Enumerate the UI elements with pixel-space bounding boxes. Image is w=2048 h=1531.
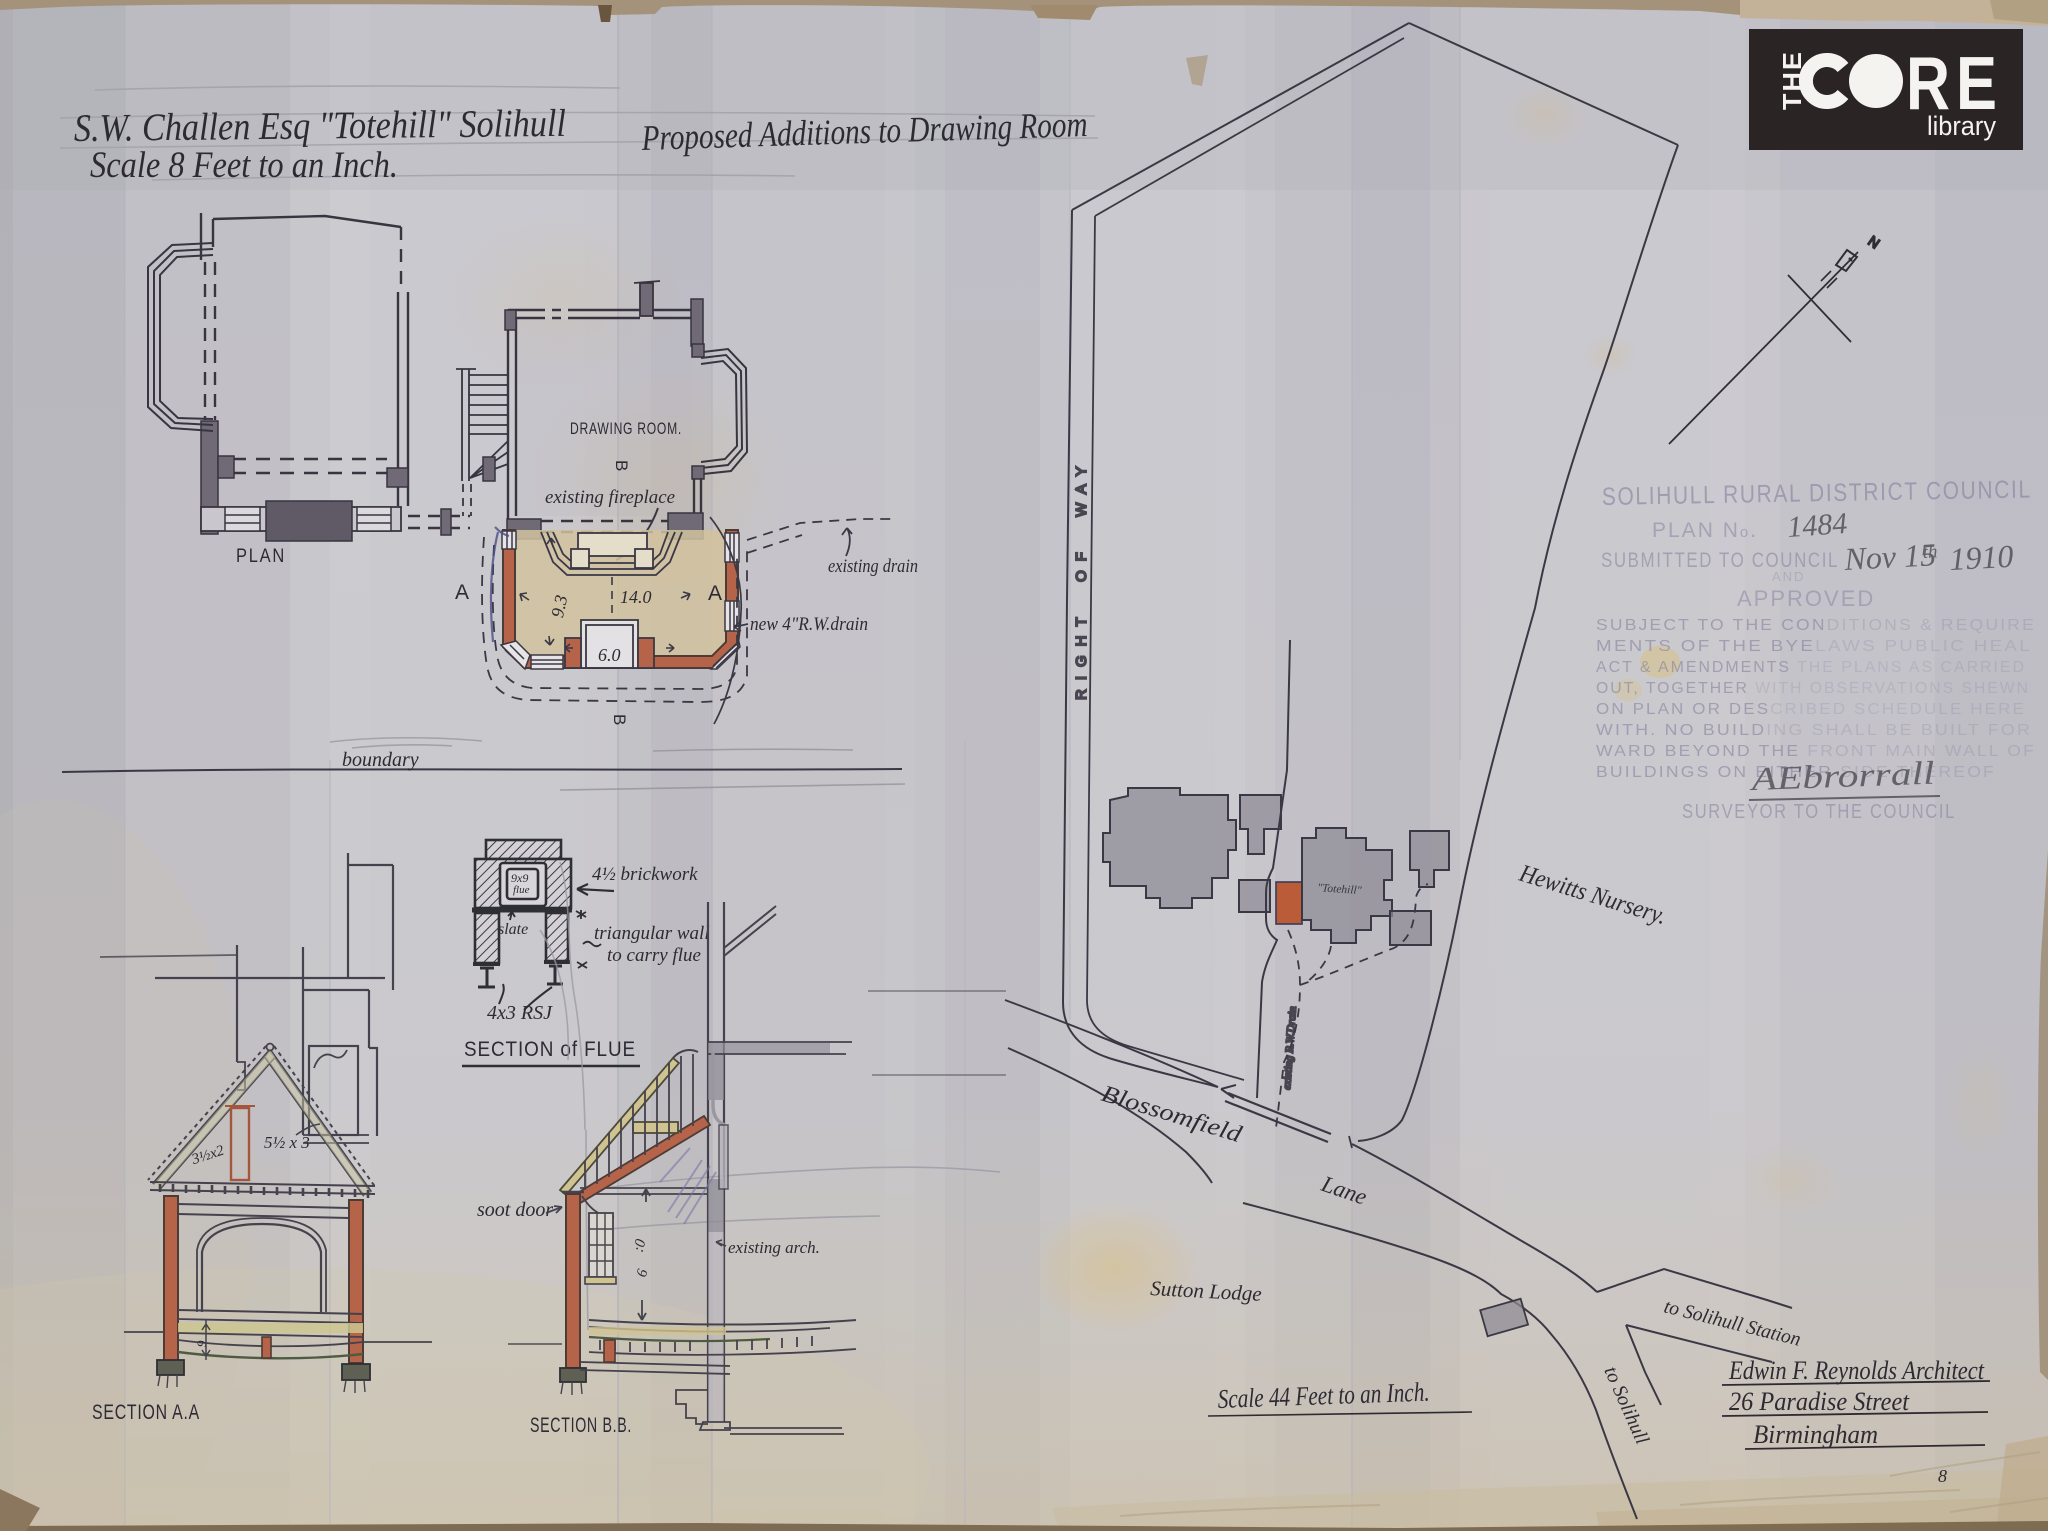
svg-text:14.0: 14.0 (620, 587, 652, 607)
svg-text:WITH. NO BUILDING SHALL BE BUI: WITH. NO BUILDING SHALL BE BUILT FOR (1596, 722, 2032, 739)
svg-text:S.W. Challen Esq "Totehill" So: S.W. Challen Esq "Totehill" Solihull (74, 102, 566, 150)
svg-text:6.0: 6.0 (598, 645, 621, 665)
svg-text:new 4"R.W.drain: new 4"R.W.drain (750, 614, 868, 635)
svg-text:DRAWING ROOM.: DRAWING ROOM. (570, 419, 682, 438)
svg-text:A: A (455, 581, 469, 604)
svg-text:SUBJECT TO THE CONDITIONS & RE: SUBJECT TO THE CONDITIONS & REQUIRE (1596, 617, 2036, 634)
svg-text:4½ brickwork: 4½ brickwork (592, 864, 698, 885)
svg-text:ON PLAN OR DESCRIBED SCHEDULE: ON PLAN OR DESCRIBED SCHEDULE HERE (1596, 701, 2026, 718)
svg-text:flue: flue (513, 884, 530, 896)
svg-text:to carry flue: to carry flue (607, 945, 701, 966)
svg-text:existing arch.: existing arch. (728, 1238, 820, 1257)
svg-text:9: 9 (194, 1340, 209, 1347)
svg-text:MENTS OF THE BYELAWS PUBLIC HE: MENTS OF THE BYELAWS PUBLIC HEAL (1596, 638, 2032, 655)
svg-text:library: library (1927, 111, 1996, 141)
svg-text:Birmingham: Birmingham (1753, 1420, 1878, 1449)
svg-text:Scale 8 Feet to an Inch.: Scale 8 Feet to an Inch. (90, 145, 398, 186)
svg-text:ACT & AMENDMENTS THE PLANS AS: ACT & AMENDMENTS THE PLANS AS CARRIED (1596, 659, 2026, 676)
svg-text:APPROVED: APPROVED (1737, 586, 1875, 611)
svg-text:SURVEYOR TO THE COUNCIL: SURVEYOR TO THE COUNCIL (1682, 801, 1956, 823)
svg-text:B: B (612, 460, 631, 471)
svg-text:AEbrorrall: AEbrorrall (1749, 756, 1936, 798)
svg-text:boundary: boundary (342, 749, 419, 771)
svg-text:th: th (1922, 541, 1938, 563)
svg-text:AND: AND (1772, 569, 1805, 584)
svg-text:WARD BEYOND THE FRONT MAIN WAL: WARD BEYOND THE FRONT MAIN WALL OF (1596, 743, 2036, 760)
svg-text:9x9: 9x9 (511, 871, 528, 885)
svg-text:8: 8 (1938, 1466, 1947, 1486)
svg-text:1910: 1910 (1948, 538, 2014, 577)
svg-text:B: B (610, 714, 629, 725)
svg-text:SECTION B.B.: SECTION B.B. (530, 1414, 632, 1437)
svg-text:triangular wall: triangular wall (594, 923, 710, 944)
svg-text:1484: 1484 (1786, 507, 1848, 544)
svg-text:Edwin F. Reynolds Architect: Edwin F. Reynolds Architect (1728, 1356, 1985, 1385)
svg-text:SECTION of FLUE: SECTION of FLUE (464, 1038, 636, 1061)
svg-text:A: A (708, 582, 722, 605)
svg-text:existing drain: existing drain (828, 556, 918, 577)
svg-text:slate: slate (498, 921, 528, 938)
svg-text:SECTION A.A: SECTION A.A (92, 1401, 200, 1424)
svg-text:26 Paradise Street: 26 Paradise Street (1729, 1387, 1910, 1416)
svg-text:soot door: soot door (477, 1199, 553, 1221)
svg-text:OUT, TOGETHER WITH OBSERVATION: OUT, TOGETHER WITH OBSERVATIONS SHEWN (1596, 680, 2030, 697)
svg-text:PLAN: PLAN (236, 546, 286, 567)
svg-text:5½ x 3: 5½ x 3 (264, 1133, 310, 1152)
svg-text:RIGHT OF WAY: RIGHT OF WAY (1073, 457, 1090, 700)
svg-text:existing fireplace: existing fireplace (545, 487, 675, 508)
svg-text:4x3 RSJ: 4x3 RSJ (487, 1002, 553, 1024)
